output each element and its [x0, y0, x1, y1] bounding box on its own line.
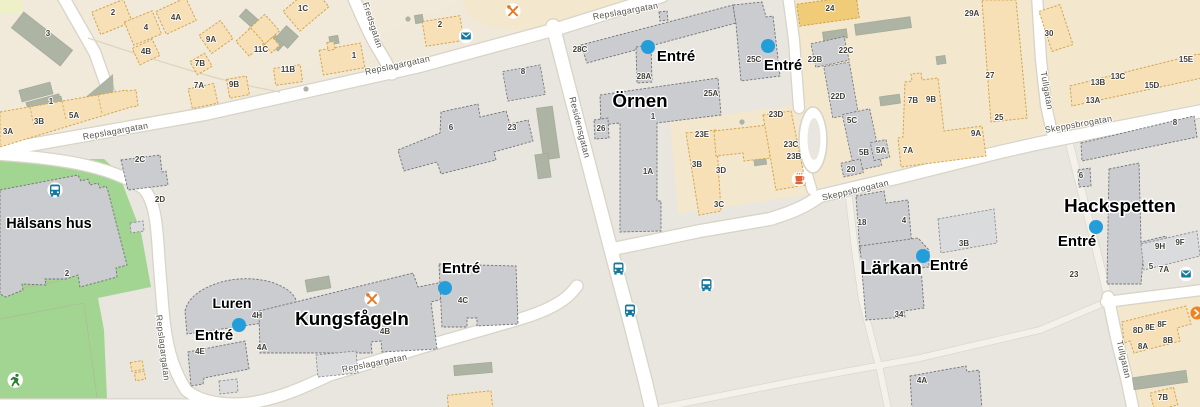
svg-text:23: 23	[508, 123, 517, 132]
svg-text:2D: 2D	[155, 195, 165, 204]
svg-text:6: 6	[1079, 171, 1084, 180]
svg-text:9H: 9H	[1155, 242, 1165, 251]
svg-text:13A: 13A	[1086, 96, 1101, 105]
svg-text:4A: 4A	[171, 13, 181, 22]
svg-text:9A: 9A	[206, 35, 216, 44]
svg-text:Entré: Entré	[442, 260, 480, 277]
svg-text:9A: 9A	[971, 129, 981, 138]
svg-text:3: 3	[46, 29, 51, 38]
svg-text:9B: 9B	[926, 95, 936, 104]
svg-text:5A: 5A	[69, 111, 79, 120]
svg-text:22C: 22C	[839, 46, 854, 55]
svg-text:23D: 23D	[769, 110, 784, 119]
svg-text:Hackspetten: Hackspetten	[1064, 195, 1176, 216]
svg-text:22D: 22D	[831, 92, 846, 101]
svg-text:4A: 4A	[257, 343, 267, 352]
svg-text:25A: 25A	[704, 89, 719, 98]
svg-text:8E: 8E	[1145, 323, 1155, 332]
svg-text:Luren: Luren	[213, 295, 252, 311]
svg-text:5: 5	[1149, 262, 1154, 271]
svg-text:22B: 22B	[808, 55, 823, 64]
svg-text:2: 2	[111, 8, 116, 17]
svg-text:13B: 13B	[1091, 78, 1106, 87]
svg-text:8A: 8A	[1138, 342, 1148, 351]
svg-text:2: 2	[65, 269, 70, 278]
svg-text:4H: 4H	[252, 311, 262, 320]
svg-text:18: 18	[858, 218, 867, 227]
svg-text:1C: 1C	[298, 4, 308, 13]
svg-text:4: 4	[144, 23, 149, 32]
svg-text:5A: 5A	[876, 146, 886, 155]
svg-text:8F: 8F	[1157, 320, 1166, 329]
svg-text:Hälsans hus: Hälsans hus	[6, 216, 91, 232]
svg-text:8B: 8B	[1163, 336, 1173, 345]
svg-text:27: 27	[986, 71, 995, 80]
svg-text:15E: 15E	[1179, 55, 1194, 64]
svg-text:20: 20	[847, 165, 856, 174]
svg-text:9F: 9F	[1175, 238, 1184, 247]
svg-text:2: 2	[438, 20, 443, 29]
svg-text:Entré: Entré	[764, 57, 802, 74]
svg-text:1A: 1A	[643, 167, 653, 176]
svg-text:6: 6	[449, 123, 454, 132]
svg-text:25C: 25C	[747, 55, 762, 64]
svg-text:4C: 4C	[458, 296, 468, 305]
svg-text:Entré: Entré	[930, 257, 968, 274]
svg-text:Entré: Entré	[657, 48, 695, 65]
svg-text:8D: 8D	[1133, 326, 1143, 335]
svg-text:Örnen: Örnen	[612, 90, 667, 111]
svg-text:3C: 3C	[714, 200, 724, 209]
svg-text:3B: 3B	[34, 117, 44, 126]
svg-text:3D: 3D	[716, 166, 726, 175]
svg-text:8: 8	[521, 67, 526, 76]
svg-text:28C: 28C	[573, 45, 588, 54]
svg-text:7A: 7A	[1159, 265, 1169, 274]
svg-text:Entré: Entré	[1058, 233, 1096, 250]
svg-text:4: 4	[902, 216, 907, 225]
svg-text:1: 1	[49, 97, 54, 106]
svg-text:7B: 7B	[908, 96, 918, 105]
svg-text:5C: 5C	[847, 116, 857, 125]
svg-text:7A: 7A	[194, 81, 204, 90]
svg-text:23E: 23E	[695, 130, 710, 139]
svg-text:7B: 7B	[195, 59, 205, 68]
svg-text:Entré: Entré	[195, 327, 233, 344]
svg-text:5B: 5B	[859, 148, 869, 157]
svg-text:2C: 2C	[135, 155, 145, 164]
svg-text:24: 24	[826, 4, 835, 13]
svg-text:7A: 7A	[903, 146, 913, 155]
svg-text:15D: 15D	[1145, 81, 1160, 90]
svg-text:13C: 13C	[1111, 72, 1126, 81]
svg-text:8: 8	[1173, 118, 1178, 127]
svg-text:28A: 28A	[637, 72, 652, 81]
svg-text:4A: 4A	[917, 376, 927, 385]
svg-text:29A: 29A	[965, 9, 980, 18]
svg-text:26: 26	[597, 124, 606, 133]
svg-text:3B: 3B	[692, 160, 702, 169]
svg-text:4B: 4B	[141, 47, 151, 56]
svg-text:3A: 3A	[3, 127, 13, 136]
svg-text:4E: 4E	[195, 347, 205, 356]
svg-text:7B: 7B	[1158, 393, 1168, 402]
svg-text:11B: 11B	[281, 65, 295, 74]
svg-text:Kungsfågeln: Kungsfågeln	[295, 308, 409, 329]
svg-text:23C: 23C	[784, 140, 799, 149]
svg-text:34: 34	[895, 310, 904, 319]
svg-text:23B: 23B	[787, 152, 802, 161]
svg-text:30: 30	[1045, 29, 1054, 38]
svg-text:25: 25	[995, 113, 1004, 122]
svg-text:9B: 9B	[229, 80, 239, 89]
svg-text:1: 1	[352, 51, 357, 60]
svg-text:Lärkan: Lärkan	[860, 257, 922, 278]
svg-text:23: 23	[1070, 270, 1079, 279]
svg-text:3B: 3B	[959, 239, 969, 248]
svg-text:11C: 11C	[254, 45, 268, 54]
svg-text:1: 1	[651, 112, 656, 121]
